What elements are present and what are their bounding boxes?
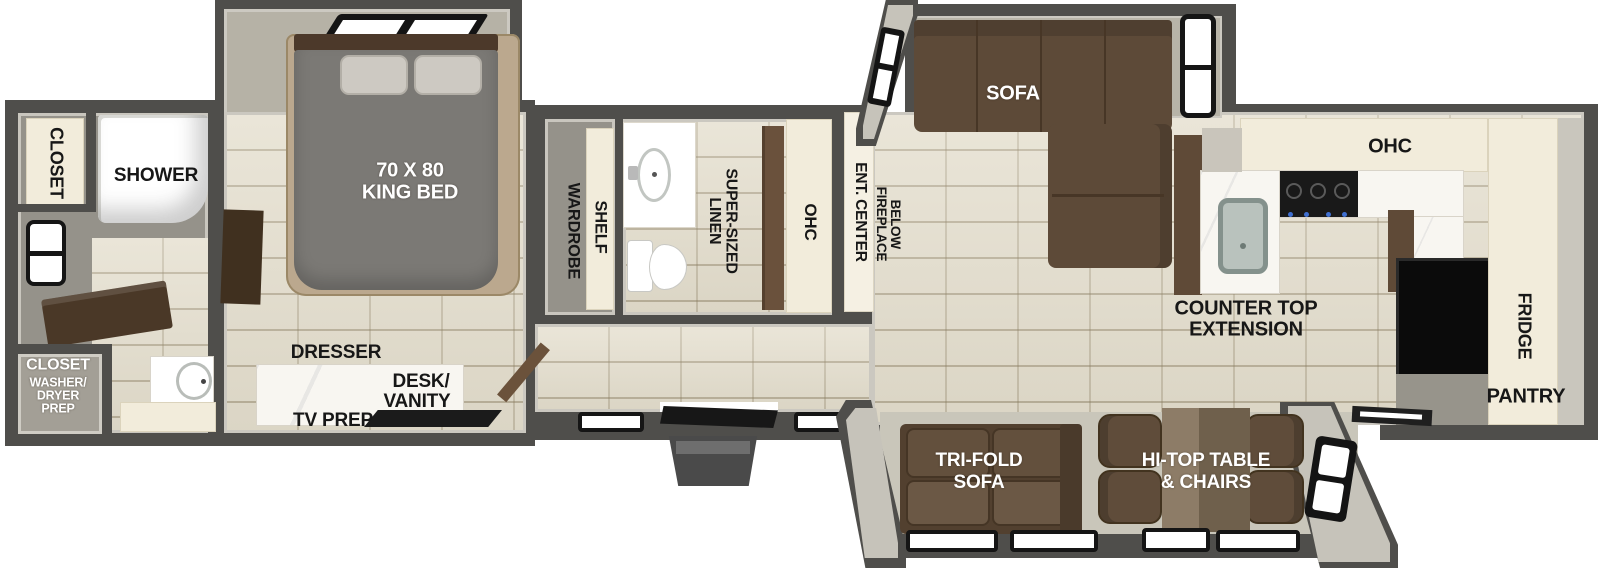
label-linen-line1: SUPER-SIZED [722, 168, 739, 273]
bed-pillow-right [414, 55, 482, 95]
label-trifold-1: TRI-FOLD [935, 451, 1022, 471]
label-desk-vanity-1: DESK/ [392, 372, 449, 392]
bottom-slide-right-window-pane2 [1312, 480, 1344, 514]
tv-prep-strip [364, 410, 502, 427]
label-fridge: FRIDGE [1515, 293, 1534, 360]
stove-burner-2 [1310, 183, 1326, 199]
kitchen-sink [1218, 198, 1268, 274]
label-kitchen-ohc: OHC [1368, 137, 1412, 158]
sofa-chaise [1048, 124, 1172, 268]
bed-pillow-left [340, 55, 408, 95]
dinette-chair-2 [1098, 470, 1162, 524]
label-trifold-2: SOFA [954, 473, 1005, 493]
label-dresser: DRESSER [291, 343, 381, 363]
sofa-chaise-seam [1052, 194, 1164, 197]
label-king-bed-2: KING BED [362, 183, 458, 204]
label-counter-ext-1: COUNTER TOP [1175, 299, 1318, 320]
wall-wardrobe-divider [615, 119, 623, 315]
label-sofa: SOFA [986, 84, 1040, 105]
kitchen-stove [1278, 171, 1358, 217]
label-bath-ohc: OHC [801, 203, 819, 240]
bottom-slide-window-4 [1216, 530, 1300, 552]
label-tv-prep: TV PREP [293, 411, 373, 431]
tv-panel [220, 209, 263, 304]
sofa-seam-3 [1104, 20, 1106, 132]
linen-cabinet-trim [762, 126, 784, 310]
rv-floorplan: CLOSET SHOWER CLOSET WASHER/ DRYER PREP … [0, 0, 1600, 571]
stove-knob-1 [1288, 212, 1293, 217]
wall-rear-closet-divider [86, 113, 96, 212]
entry-step-tread [676, 441, 750, 454]
wall-ent-center [832, 108, 844, 312]
label-wardrobe: WARDROBE [564, 183, 581, 279]
rear-wall-window [26, 220, 66, 286]
fridge [1396, 258, 1488, 374]
label-pantry: PANTRY [1487, 387, 1566, 408]
label-linen: SUPER-SIZED LINEN [705, 168, 738, 273]
wall-washer-closet-right [102, 344, 112, 444]
stove-knob-4 [1342, 212, 1347, 217]
bottom-slide-window-3 [1142, 528, 1210, 552]
label-fireplace-line1: FIREPLACE [874, 187, 888, 262]
stove-burner-1 [1286, 183, 1302, 199]
label-rear-closet: CLOSET [47, 127, 66, 199]
kitchen-sink-drain [1240, 243, 1246, 249]
bottom-slide-window-1 [906, 530, 998, 552]
dinette-chair-4 [1246, 470, 1304, 524]
label-shower: SHOWER [114, 166, 198, 186]
sofa-slide-right-window [1180, 14, 1216, 118]
wall-bottom-front [1380, 424, 1598, 440]
label-desk-vanity-2: VANITY [383, 392, 450, 412]
wall-rear-closet-bottom [18, 204, 96, 212]
label-ent-center: ENT. CENTER [852, 162, 868, 261]
sofa-slide-left-window-pane1 [880, 33, 899, 65]
label-shelf: SHELF [591, 200, 608, 253]
rear-sink-drain [201, 379, 206, 384]
sofa-seam-2 [1040, 20, 1042, 132]
stove-knob-2 [1304, 212, 1309, 217]
rear-sink-bowl [176, 362, 212, 400]
bottom-slide-window-2 [1010, 530, 1098, 552]
label-linen-line2: LINEN [705, 168, 722, 273]
sofa-slide-right-window-divider [1185, 65, 1211, 70]
kitchen-wall-block [1202, 128, 1242, 172]
bottom-wall-window-1 [578, 412, 644, 432]
sofa-slide-left-window-pane2 [873, 69, 892, 101]
label-king-bed-1: 70 X 80 [376, 161, 444, 182]
bath-faucet [628, 166, 638, 180]
bath-sink-drain [652, 172, 657, 177]
rear-sink-base [120, 402, 216, 432]
sofa-seam-1 [976, 20, 978, 132]
floor-hallway [535, 324, 872, 412]
counter-extension-cabinet [1174, 135, 1202, 295]
kitchen-ohc-top [1240, 118, 1488, 172]
rear-wall-window-divider [30, 251, 62, 256]
bottom-slide-right-window-pane1 [1318, 444, 1350, 478]
kitchen-side-cabinets [1488, 118, 1558, 425]
front-door-window-slit [1360, 411, 1422, 419]
label-fireplace-line2: BELOW [888, 187, 902, 262]
trifold-arm [1060, 424, 1082, 534]
wall-front-cap [1584, 104, 1598, 440]
label-hitop-2: & CHAIRS [1161, 473, 1251, 493]
label-fireplace: FIREPLACE BELOW [874, 187, 902, 262]
stove-burner-3 [1334, 183, 1350, 199]
label-counter-ext-2: EXTENSION [1189, 320, 1303, 341]
entry-step [666, 436, 760, 486]
front-wall-liner [1558, 118, 1584, 425]
stove-knob-3 [1326, 212, 1331, 217]
label-washer-closet-4: PREP [41, 403, 74, 416]
label-hitop-1: HI-TOP TABLE [1142, 451, 1271, 471]
wall-washer-closet-top [8, 344, 112, 354]
sofa-back [914, 20, 1172, 132]
label-washer-closet-1: CLOSET [26, 358, 90, 375]
